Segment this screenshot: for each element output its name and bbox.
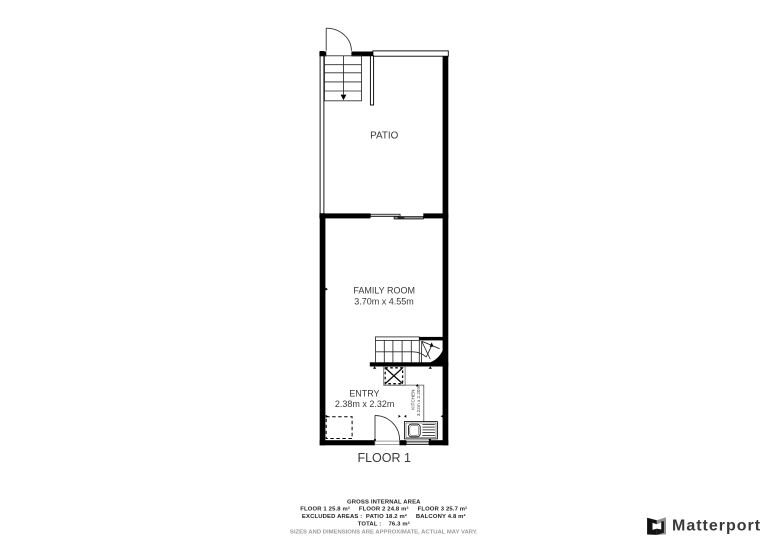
svg-text:Matterport: Matterport <box>672 518 761 535</box>
svg-text:3.70m x 4.55m: 3.70m x 4.55m <box>354 296 414 306</box>
svg-text:3.22m x 2.20m: 3.22m x 2.20m <box>416 386 421 417</box>
svg-text:2.38m x 2.32m: 2.38m x 2.32m <box>335 399 395 409</box>
svg-text:FAMILY ROOM: FAMILY ROOM <box>353 285 415 295</box>
svg-text:EXCLUDED AREAS : PATIO 18.2 m: EXCLUDED AREAS : PATIO 18.2 m² BALCONY 4… <box>302 513 466 520</box>
svg-text:FLOOR 1: FLOOR 1 <box>357 451 411 465</box>
svg-text:PATIO: PATIO <box>370 130 398 141</box>
svg-text:FLOOR 1 25.8 m² FLOOR 2 24: FLOOR 1 25.8 m² FLOOR 2 24.8 m² FLOOR 3 … <box>300 506 467 513</box>
svg-text:SIZES AND DIMENSIONS ARE APPRO: SIZES AND DIMENSIONS ARE APPROXIMATE, AC… <box>290 529 478 535</box>
svg-text:GROSS INTERNAL AREA: GROSS INTERNAL AREA <box>347 499 421 505</box>
svg-text:ENTRY: ENTRY <box>349 388 379 398</box>
svg-text:TOTAL : 76.3 m²: TOTAL : 76.3 m² <box>358 520 410 527</box>
svg-text:KITCHEN: KITCHEN <box>411 390 416 410</box>
